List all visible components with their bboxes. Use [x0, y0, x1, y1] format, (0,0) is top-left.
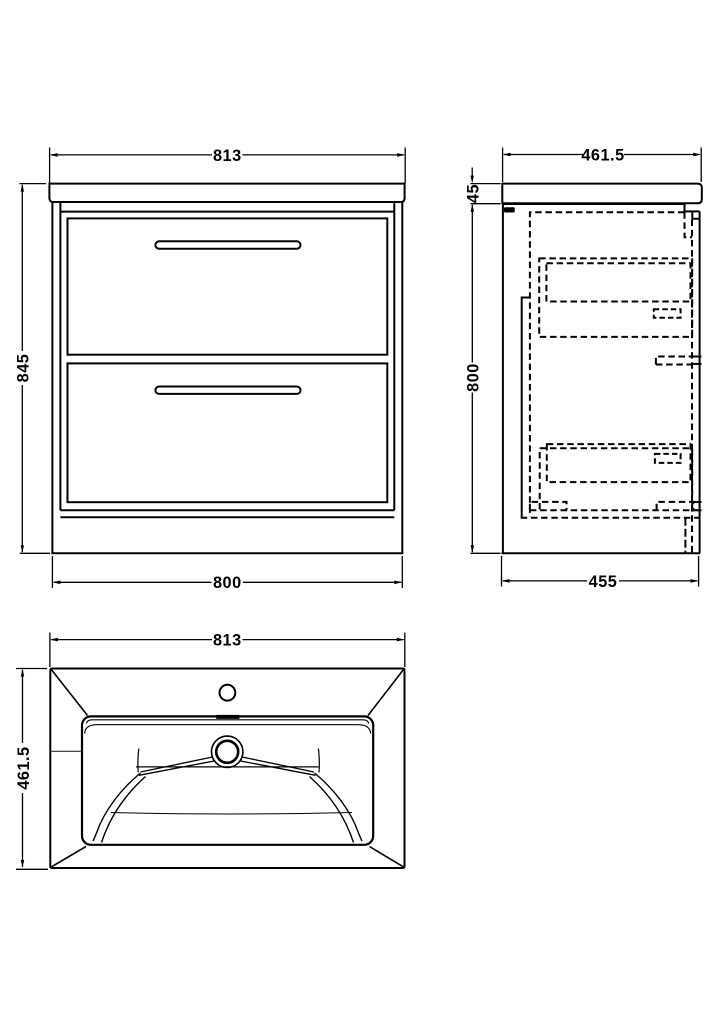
svg-text:45: 45 — [464, 184, 482, 203]
svg-text:800: 800 — [213, 574, 242, 592]
svg-text:800: 800 — [465, 363, 483, 392]
svg-text:813: 813 — [213, 632, 242, 650]
svg-text:455: 455 — [589, 573, 618, 591]
svg-text:461.5: 461.5 — [15, 746, 33, 789]
svg-text:813: 813 — [213, 147, 242, 165]
svg-text:461.5: 461.5 — [581, 146, 624, 164]
svg-text:845: 845 — [15, 354, 33, 383]
